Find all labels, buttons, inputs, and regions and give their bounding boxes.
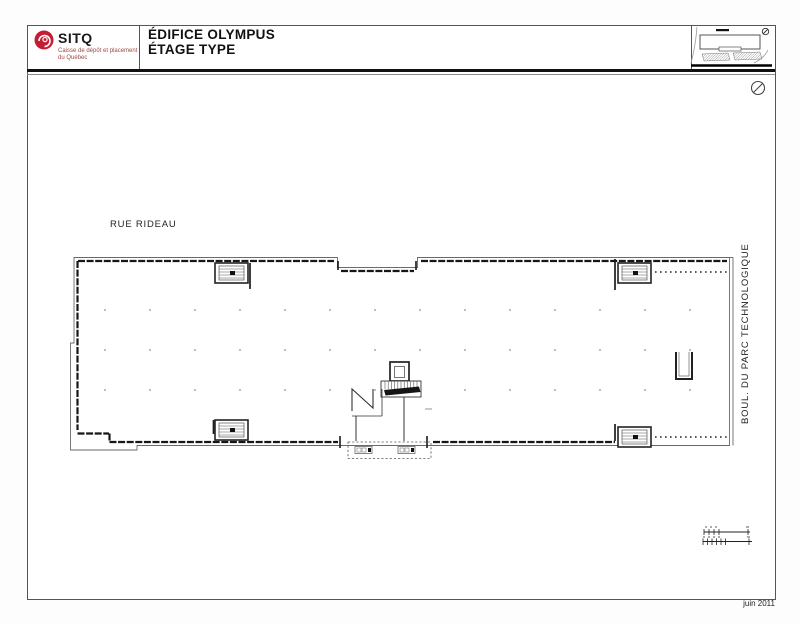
titleblock-divider-right: [691, 25, 692, 70]
drawing-sheet-page: SITQ Caisse de dépôt et placement du Qué…: [0, 0, 800, 623]
sheet-title-line1: ÉDIFICE OLYMPUS: [148, 27, 275, 42]
brand-subtitle: Caisse de dépôt et placement du Québec: [58, 48, 137, 62]
titleblock-bottom-rule: [27, 69, 775, 72]
street-label-boul-parc-technologique: BOUL. DU PARC TECHNOLOGIQUE: [740, 254, 754, 424]
brand-subtitle-line2: du Québec: [58, 55, 137, 62]
sheet-border: [27, 25, 776, 600]
brand-name: SITQ: [58, 30, 93, 46]
sheet-title: ÉDIFICE OLYMPUS ÉTAGE TYPE: [148, 27, 275, 57]
titleblock-bottom-rule-thin: [27, 74, 775, 75]
brand-subtitle-line1: Caisse de dépôt et placement: [58, 48, 137, 55]
date-label: juin 2011: [690, 599, 775, 608]
titleblock-divider-left: [139, 25, 140, 70]
street-label-rue-rideau: RUE RIDEAU: [110, 219, 177, 230]
sheet-title-line2: ÉTAGE TYPE: [148, 42, 275, 57]
